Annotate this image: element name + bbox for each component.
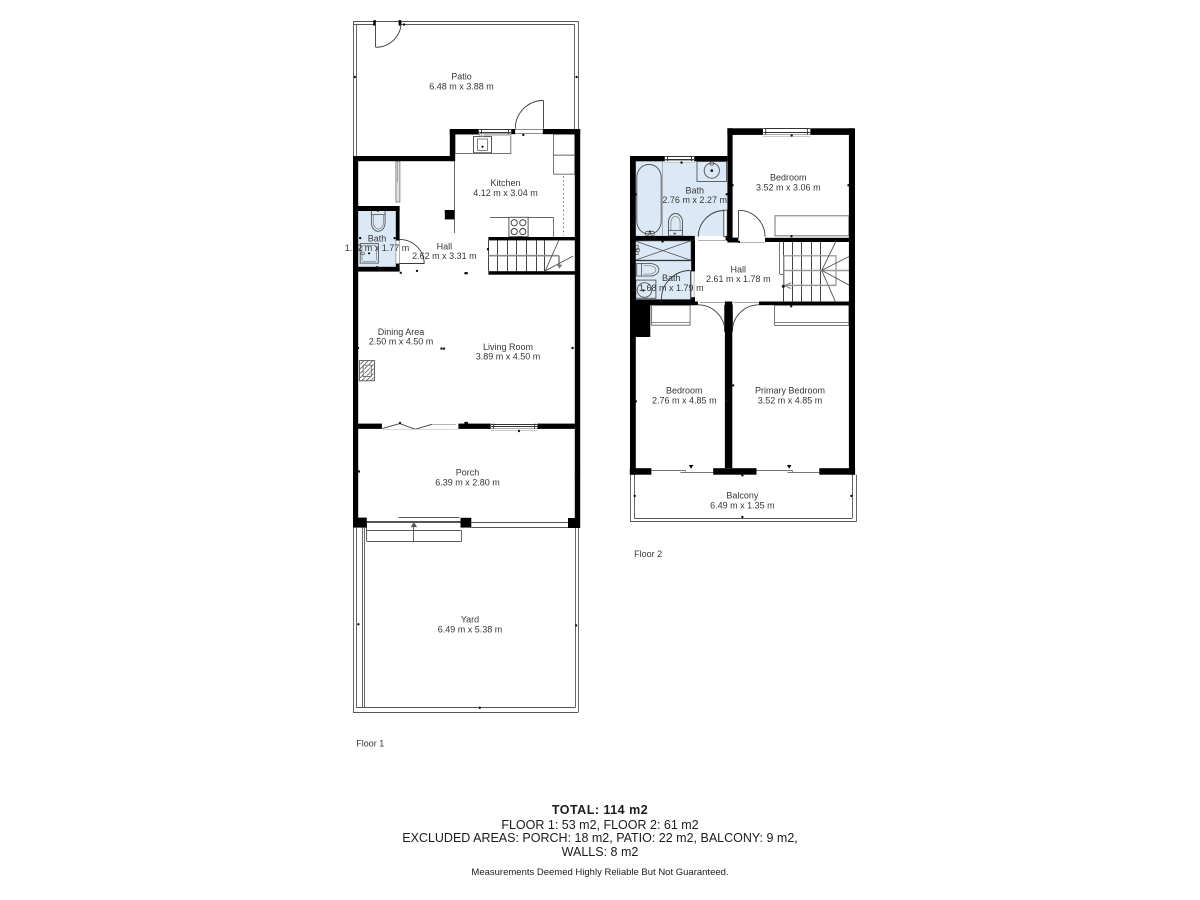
svg-text:6.48 m x 3.88 m: 6.48 m x 3.88 m <box>429 82 494 92</box>
svg-text:Floor 2: Floor 2 <box>634 549 662 559</box>
svg-text:6.39 m x 2.80 m: 6.39 m x 2.80 m <box>435 478 500 488</box>
svg-text:2.50 m x 4.50 m: 2.50 m x 4.50 m <box>369 337 434 347</box>
svg-text:Bath: Bath <box>685 185 704 195</box>
svg-text:Porch: Porch <box>456 468 480 478</box>
svg-text:Bath: Bath <box>662 273 681 283</box>
svg-text:Primary Bedroom: Primary Bedroom <box>755 386 825 396</box>
svg-text:Kitchen: Kitchen <box>490 178 520 188</box>
svg-text:2.76 m x 4.85 m: 2.76 m x 4.85 m <box>652 396 717 406</box>
svg-text:1.68 m x 1.79 m: 1.68 m x 1.79 m <box>639 283 704 293</box>
svg-text:2.76 m x 2.27 m: 2.76 m x 2.27 m <box>662 195 727 205</box>
svg-text:2.61 m x 1.78 m: 2.61 m x 1.78 m <box>706 274 771 284</box>
svg-text:2.62 m x 3.31 m: 2.62 m x 3.31 m <box>412 251 477 261</box>
svg-text:Hall: Hall <box>731 264 747 274</box>
svg-text:Yard: Yard <box>461 615 479 625</box>
svg-text:6.49 m x 1.35 m: 6.49 m x 1.35 m <box>710 500 775 510</box>
svg-text:3.89 m x 4.50 m: 3.89 m x 4.50 m <box>476 352 541 362</box>
svg-text:Patio: Patio <box>451 72 472 82</box>
svg-text:Hall: Hall <box>437 241 453 251</box>
svg-text:Balcony: Balcony <box>726 491 759 501</box>
svg-text:3.52 m x 3.06 m: 3.52 m x 3.06 m <box>756 182 821 192</box>
svg-text:Living Room: Living Room <box>483 342 533 352</box>
svg-text:Floor 1: Floor 1 <box>356 739 384 749</box>
svg-text:Bedroom: Bedroom <box>770 172 807 182</box>
svg-text:Dining Area: Dining Area <box>378 327 425 337</box>
svg-text:Bedroom: Bedroom <box>666 386 703 396</box>
svg-text:3.52 m x 4.85 m: 3.52 m x 4.85 m <box>758 396 823 406</box>
svg-text:6.49 m x 5.38 m: 6.49 m x 5.38 m <box>438 625 503 635</box>
svg-text:4.12 m x 3.04 m: 4.12 m x 3.04 m <box>473 188 538 198</box>
svg-text:Bath: Bath <box>368 233 387 243</box>
